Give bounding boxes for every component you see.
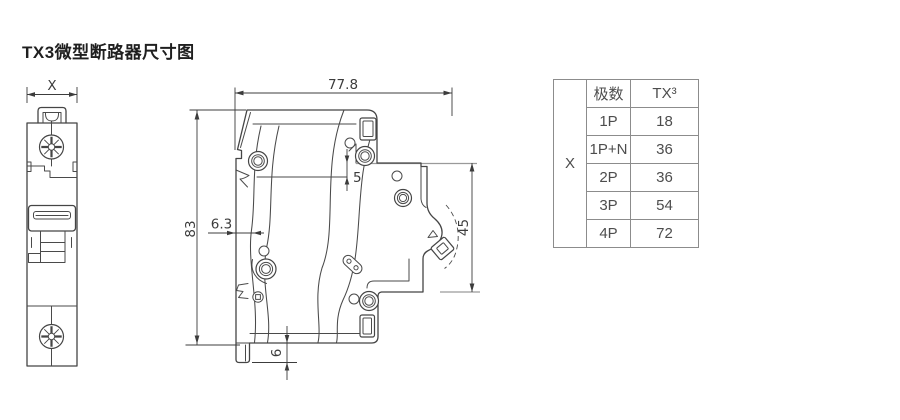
- value-cell: 36: [631, 136, 699, 164]
- value-cell: 18: [631, 108, 699, 136]
- svg-text:5: 5: [353, 170, 362, 186]
- col-header-poles: 极数: [587, 80, 631, 108]
- poles-cell: 3P: [587, 192, 631, 220]
- dim-front-width: X: [27, 78, 77, 103]
- value-cell: 36: [631, 164, 699, 192]
- table-corner-label: X: [554, 80, 587, 248]
- toggle-handle: [29, 206, 76, 263]
- table-header-row: X 极数 TX³: [554, 80, 699, 108]
- svg-text:6.3: 6.3: [211, 217, 232, 233]
- svg-text:77.8: 77.8: [328, 77, 358, 93]
- terminal-screw-icon: [249, 152, 268, 171]
- poles-cell: 2P: [587, 164, 631, 192]
- terminal-screw-icon: [356, 147, 375, 166]
- terminal-screw-icon: [256, 259, 276, 279]
- hole-icon: [392, 171, 402, 181]
- poles-cell: 1P: [587, 108, 631, 136]
- clip-hook: [428, 231, 438, 238]
- hole-icon: [259, 246, 269, 256]
- value-cell: 72: [631, 220, 699, 248]
- pozidriv-screw-icon: [40, 325, 64, 349]
- terminal-slot-top: [360, 118, 376, 140]
- page: TX3微型断路器尺寸图 X: [0, 0, 900, 420]
- front-top-terminal: [38, 108, 66, 124]
- terminal-screw-icon: [395, 190, 412, 207]
- value-cell: 54: [631, 192, 699, 220]
- poles-cell: 1P+N: [587, 136, 631, 164]
- front-view: X: [27, 78, 77, 366]
- side-view: 77.8 83 6.3 5: [183, 77, 480, 380]
- hole-icon: [349, 294, 359, 304]
- dim-front-width-label: X: [47, 78, 56, 94]
- dim-depth-77-8: 77.8: [235, 77, 452, 150]
- hole-icon: [345, 138, 355, 148]
- col-header-tx3: TX³: [631, 80, 699, 108]
- poles-cell: 4P: [587, 220, 631, 248]
- side-body-outline: [236, 110, 442, 363]
- terminal-slot-bottom: [360, 315, 375, 337]
- terminal-screw-icon: [360, 292, 379, 311]
- fixing-screw-icon: [253, 292, 263, 302]
- dim-mount-depth-45: 45: [456, 163, 474, 292]
- svg-text:45: 45: [456, 219, 472, 236]
- svg-text:6: 6: [269, 349, 285, 358]
- din-clip-knob: [430, 237, 454, 261]
- dim-rail-step-6: 6: [252, 326, 297, 380]
- width-spec-table: X 极数 TX³ 1P 18 1P+N 36 2P 36 3P 54 4P: [553, 79, 699, 248]
- pozidriv-screw-icon: [40, 135, 64, 159]
- dimension-drawing: X: [0, 0, 900, 420]
- svg-text:83: 83: [183, 220, 199, 237]
